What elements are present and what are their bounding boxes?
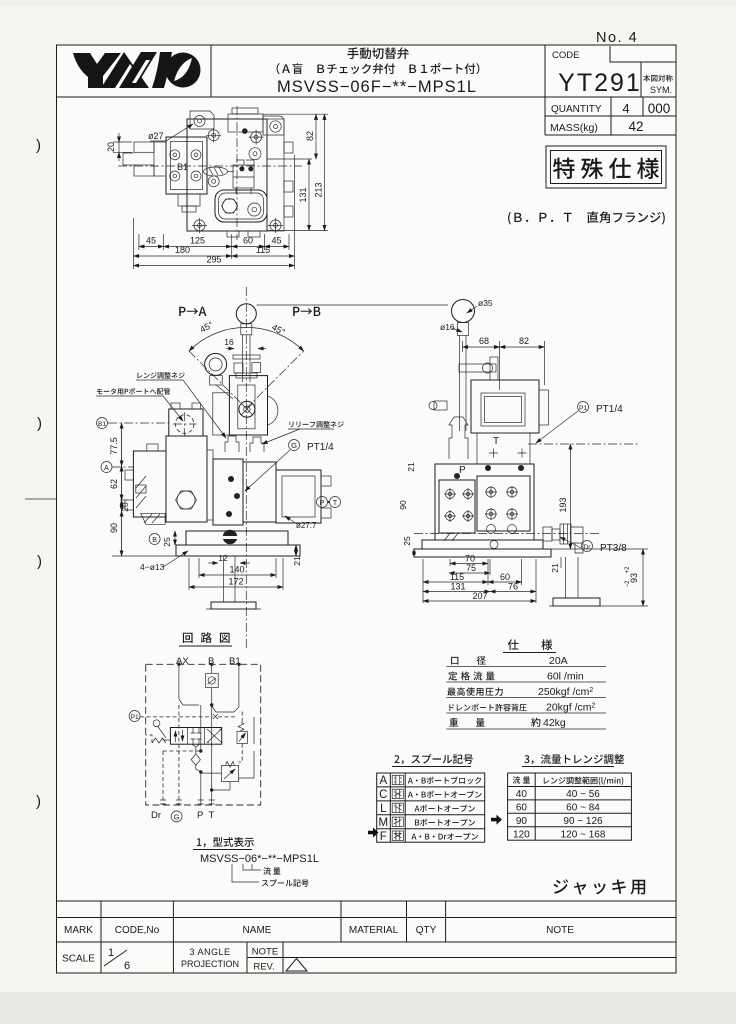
svg-text:207: 207: [472, 591, 487, 601]
svg-text:P1: P1: [131, 714, 139, 721]
svg-text:No. 4: No. 4: [596, 30, 638, 46]
svg-text:+2: +2: [625, 566, 631, 574]
svg-text:40 ~ 56: 40 ~ 56: [566, 789, 600, 800]
svg-text:20: 20: [120, 502, 130, 512]
svg-text:250kgf /cm2: 250kgf /cm2: [538, 686, 593, 698]
svg-text:40: 40: [516, 789, 528, 800]
svg-text:180: 180: [175, 245, 190, 255]
svg-text:L: L: [380, 803, 387, 815]
svg-text:75: 75: [466, 563, 476, 573]
svg-text:F: F: [380, 831, 387, 843]
svg-text:): ): [37, 553, 42, 570]
svg-text:45: 45: [146, 236, 156, 246]
svg-text:4−ø13: 4−ø13: [140, 562, 165, 572]
svg-text:): ): [36, 793, 41, 810]
svg-text:B: B: [152, 537, 157, 544]
svg-text:): ): [36, 137, 41, 154]
svg-text:PT1/4: PT1/4: [307, 442, 334, 453]
svg-text:CODE: CODE: [552, 50, 579, 61]
svg-text:60: 60: [500, 572, 510, 582]
svg-text:21: 21: [406, 462, 416, 472]
svg-text:C: C: [379, 789, 387, 801]
svg-text:16: 16: [224, 337, 234, 347]
svg-text:MSVSS−06F−**−MPS1L: MSVSS−06F−**−MPS1L: [277, 78, 477, 96]
svg-text:T: T: [493, 436, 499, 447]
svg-text:172: 172: [228, 577, 243, 587]
svg-text:ø27: ø27: [148, 131, 164, 141]
svg-text:42: 42: [628, 119, 643, 134]
svg-text:77.5: 77.5: [109, 437, 119, 455]
svg-text:42kg: 42kg: [543, 717, 566, 729]
svg-text:115: 115: [450, 572, 464, 582]
svg-text:62: 62: [109, 479, 119, 489]
svg-text:P: P: [459, 465, 466, 476]
svg-text:A: A: [104, 465, 109, 472]
svg-text:SYM.: SYM.: [650, 85, 672, 95]
svg-text:NAME: NAME: [243, 925, 272, 936]
svg-text:76: 76: [508, 582, 518, 592]
svg-text:82: 82: [305, 131, 315, 141]
svg-text:G: G: [174, 813, 180, 822]
svg-text:REV.: REV.: [253, 962, 274, 973]
svg-text:Dr: Dr: [151, 810, 161, 821]
svg-text:90: 90: [516, 816, 528, 827]
svg-text:120: 120: [513, 830, 530, 841]
svg-text:Dr: Dr: [584, 544, 592, 551]
svg-text:70: 70: [465, 554, 475, 564]
svg-text:60 ~ 84: 60 ~ 84: [566, 803, 600, 814]
svg-text:000: 000: [648, 101, 671, 116]
svg-text:131: 131: [450, 582, 465, 592]
svg-text:6: 6: [124, 960, 130, 972]
svg-text:115: 115: [256, 245, 270, 255]
svg-text:T: T: [209, 810, 215, 821]
svg-text:45: 45: [271, 236, 281, 246]
svg-text:193: 193: [558, 497, 568, 512]
svg-text:21: 21: [550, 563, 560, 573]
svg-text:CODE,No: CODE,No: [115, 925, 160, 936]
svg-text:25: 25: [162, 537, 172, 547]
svg-text:MARK: MARK: [64, 925, 93, 936]
svg-text:MASS(kg): MASS(kg): [550, 122, 598, 134]
svg-text:82: 82: [519, 336, 529, 346]
svg-text:20A: 20A: [549, 655, 568, 667]
svg-text:90: 90: [109, 523, 119, 533]
svg-text:4: 4: [622, 101, 629, 116]
svg-text:120 ~ 168: 120 ~ 168: [561, 830, 606, 841]
svg-text:60l /min: 60l /min: [547, 671, 584, 683]
svg-text:G: G: [291, 441, 297, 450]
svg-text:M: M: [379, 817, 389, 829]
svg-text:B1: B1: [177, 162, 188, 172]
svg-text:P: P: [320, 500, 325, 507]
svg-text:PT1/4: PT1/4: [596, 404, 623, 415]
svg-text:21: 21: [292, 556, 302, 566]
svg-text:1: 1: [108, 947, 114, 959]
svg-text:295: 295: [206, 255, 221, 265]
svg-text:60: 60: [516, 803, 528, 814]
svg-text:QTY: QTY: [416, 925, 437, 936]
svg-text:QUANTITY: QUANTITY: [551, 104, 602, 115]
svg-text:131: 131: [298, 187, 308, 202]
svg-text:PROJECTION: PROJECTION: [181, 959, 239, 969]
svg-text:60: 60: [243, 236, 253, 246]
svg-text:ø16: ø16: [440, 322, 455, 332]
svg-text:−2: −2: [625, 580, 631, 588]
svg-text:NOTE: NOTE: [546, 925, 574, 936]
svg-text:P1: P1: [579, 405, 587, 412]
svg-text:MSVSS−06*−**−MPS1L: MSVSS−06*−**−MPS1L: [200, 853, 319, 865]
svg-text:T: T: [333, 500, 338, 507]
svg-text:YT291: YT291: [558, 69, 642, 97]
svg-text:SCALE: SCALE: [62, 954, 95, 965]
svg-text:12: 12: [218, 553, 228, 563]
svg-text:A: A: [379, 775, 387, 787]
svg-text:20kgf /cm2: 20kgf /cm2: [546, 702, 596, 714]
svg-text:90: 90: [398, 500, 408, 510]
svg-text:68: 68: [479, 336, 489, 346]
svg-text:90 ~ 126: 90 ~ 126: [563, 816, 603, 827]
svg-text:140: 140: [229, 565, 244, 575]
svg-text:20: 20: [106, 142, 116, 152]
svg-text:ø35: ø35: [478, 298, 493, 308]
svg-text:): ): [37, 415, 42, 432]
svg-text:PT3/8: PT3/8: [600, 543, 627, 554]
svg-text:ø27.7: ø27.7: [296, 521, 317, 530]
svg-text:25: 25: [402, 536, 412, 546]
svg-text:213: 213: [314, 182, 324, 197]
svg-text:3 ANGLE: 3 ANGLE: [189, 947, 230, 957]
svg-text:125: 125: [190, 236, 205, 246]
svg-text:NOTE: NOTE: [252, 947, 278, 958]
svg-text:B1: B1: [98, 421, 106, 428]
svg-text:P: P: [197, 810, 203, 821]
svg-text:MATERIAL: MATERIAL: [349, 925, 399, 936]
